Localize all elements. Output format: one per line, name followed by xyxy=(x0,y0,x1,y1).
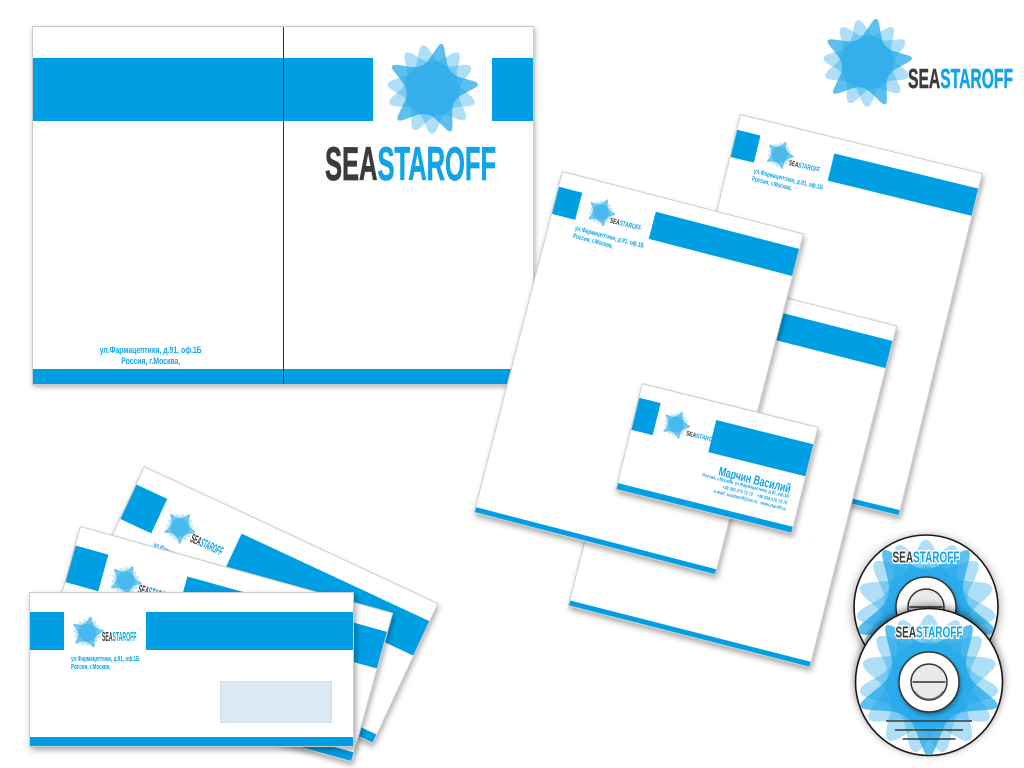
svg-text:SEASTAROFF: SEASTAROFF xyxy=(895,623,962,641)
svg-text:SEASTAROFF: SEASTAROFF xyxy=(892,548,959,566)
